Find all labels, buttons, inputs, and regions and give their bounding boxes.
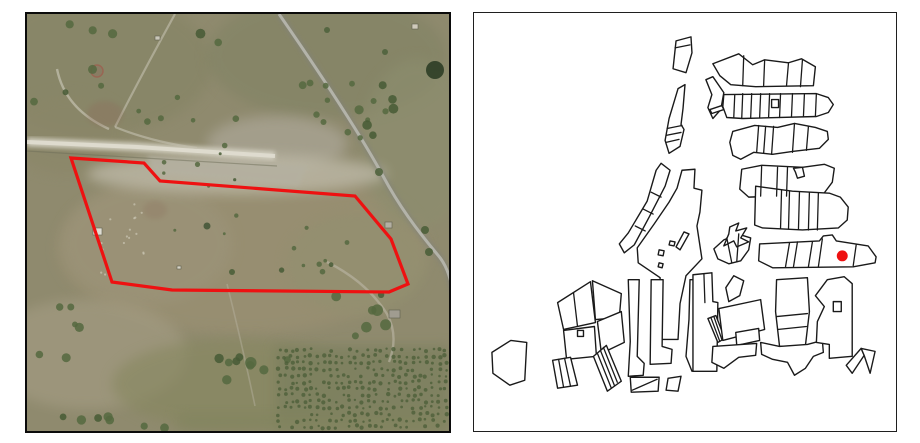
parcel-polygon — [658, 263, 663, 268]
parcel-marker-dot — [837, 250, 848, 261]
parcel-polygon — [776, 278, 810, 347]
parcel-polygon — [666, 376, 681, 391]
aerial-photo-panel — [25, 12, 451, 433]
parcel-polygon — [833, 302, 841, 312]
aerial-photo-image — [27, 14, 449, 431]
parcel-polygon — [658, 250, 664, 256]
cadastral-map-drawing — [474, 13, 896, 431]
parcel-polygon — [578, 330, 584, 336]
cadastral-map-panel — [473, 12, 897, 432]
parcel-polygon — [669, 241, 675, 246]
parcel-polygon — [772, 100, 779, 108]
two-panel-map-figure — [0, 0, 920, 443]
